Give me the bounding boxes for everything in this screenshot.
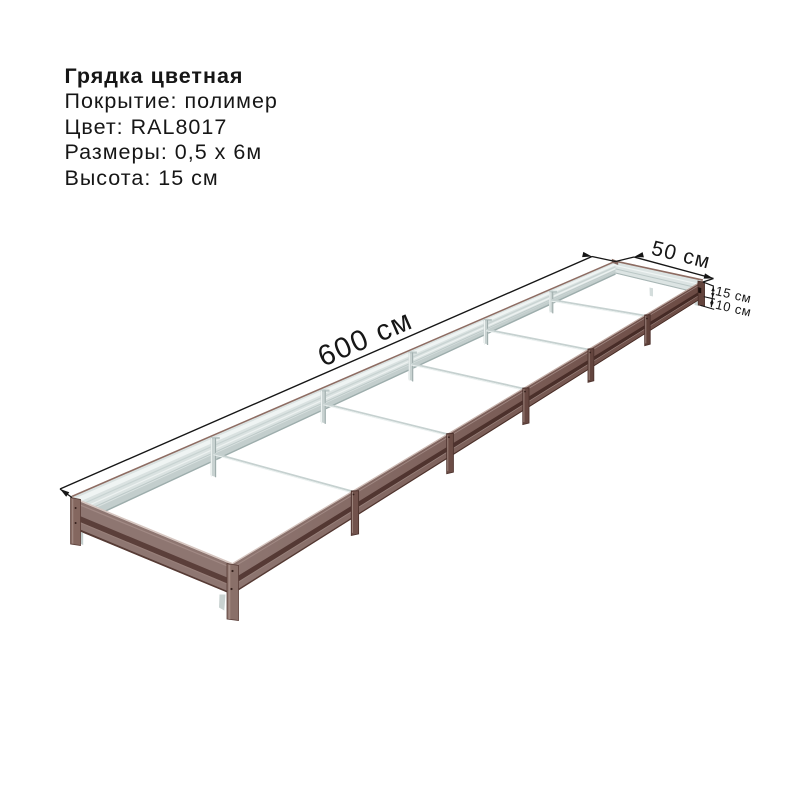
svg-text:50 см: 50 см	[649, 237, 713, 274]
